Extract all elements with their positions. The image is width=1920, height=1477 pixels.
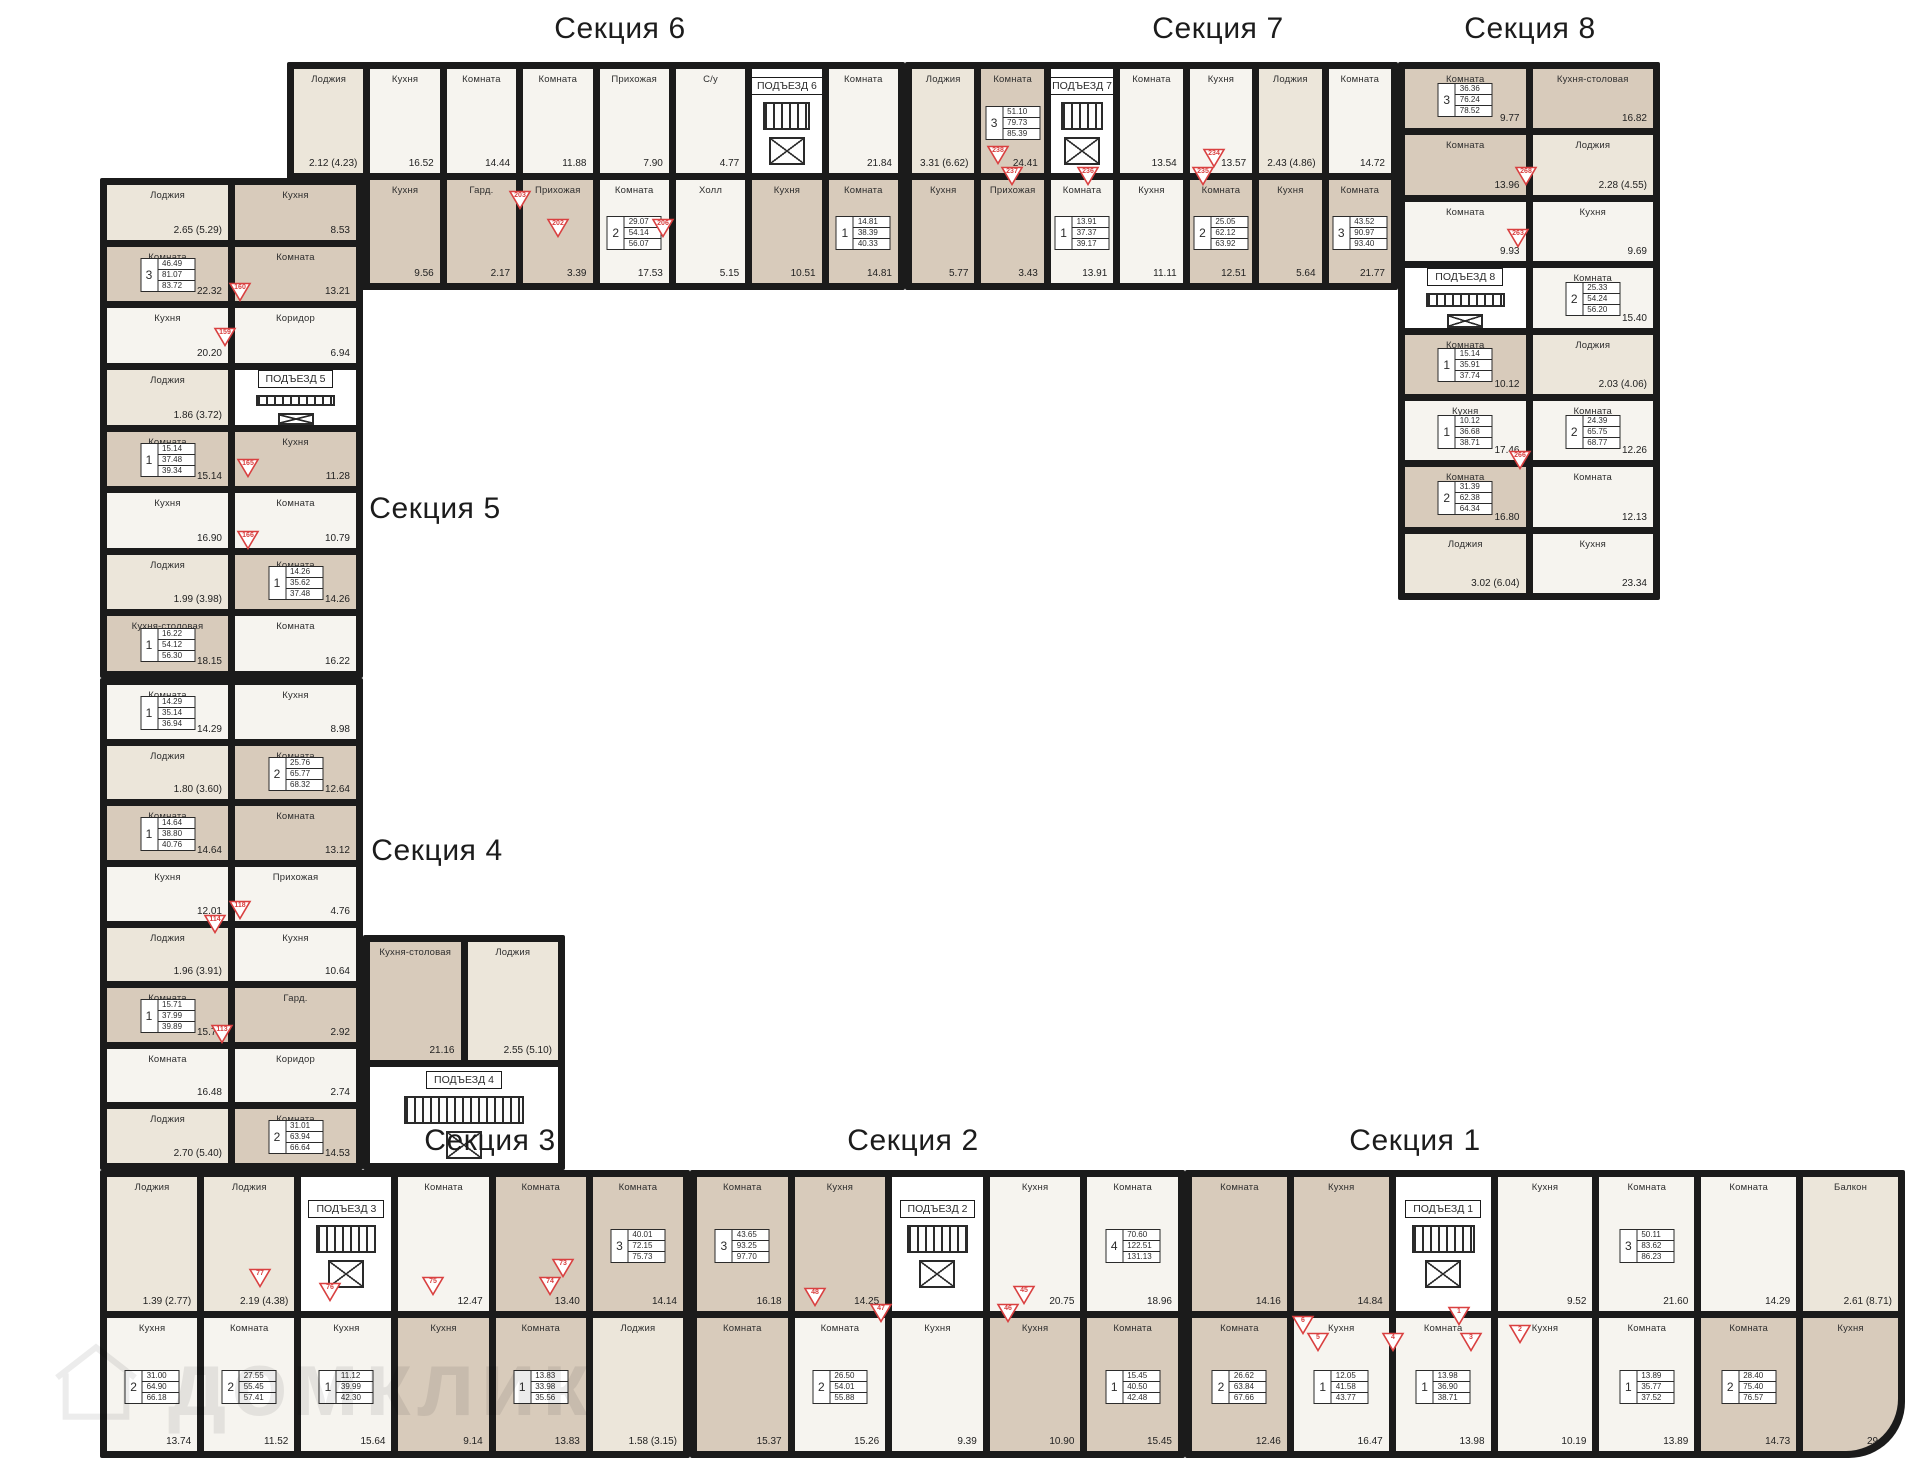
- room-area: 12.46: [1256, 1436, 1281, 1447]
- room-area: 18.15: [197, 656, 222, 667]
- apartment-area-value: 86.23: [1637, 1252, 1673, 1262]
- apartment-number-badge: 234: [1202, 148, 1226, 168]
- room-area: 1.80 (3.60): [174, 784, 222, 795]
- apartment-rooms-count: 2: [608, 217, 625, 249]
- room-area: 2.28 (4.55): [1599, 180, 1647, 191]
- badge-number: 74: [538, 1278, 562, 1285]
- room-name: Комната: [1120, 74, 1182, 85]
- elevator-icon: [1425, 1260, 1461, 1288]
- room-cell: Комната14.53231.0163.9466.64: [235, 1109, 356, 1163]
- entrance-label: ПОДЪЕЗД 7: [1051, 77, 1113, 95]
- room-cell: Гард.2.17: [447, 180, 516, 284]
- apartment-rooms-count: 1: [141, 444, 158, 476]
- apartment-rooms-count: 2: [1213, 1371, 1230, 1403]
- room-cell: Лоджия1.96 (3.91): [107, 928, 228, 982]
- room-area: 8.98: [331, 724, 350, 735]
- apartment-rooms-count: 3: [1333, 217, 1350, 249]
- apartment-stats: 114.2935.1436.94: [140, 696, 195, 730]
- entrance-label: ПОДЪЕЗД 6: [752, 77, 821, 95]
- stair-core: ПОДЪЕЗД 7: [1051, 69, 1113, 173]
- apartment-areas: 14.6438.8040.76: [158, 818, 194, 850]
- apartment-rooms-count: 2: [269, 758, 286, 790]
- room-name: Комната: [496, 1182, 586, 1193]
- room-name: Лоджия: [107, 751, 228, 762]
- apartment-stats: 111.1239.9942.30: [319, 1370, 374, 1404]
- room-cell: Кухня8.53: [235, 185, 356, 240]
- apartment-area-value: 42.30: [337, 1393, 373, 1403]
- room-cell: Комната15.14115.1437.4839.34: [107, 432, 228, 487]
- apartment-area-value: 93.40: [1350, 239, 1386, 249]
- entrance-label: ПОДЪЕЗД 3: [308, 1200, 384, 1218]
- apartment-rooms-count: 2: [126, 1371, 143, 1403]
- room-area: 10.90: [1049, 1436, 1074, 1447]
- room-cell: Кухня23.34: [1533, 534, 1654, 593]
- room-area: 29.50: [1867, 1436, 1892, 1447]
- room-cell: Комната14.14340.0172.1575.73: [593, 1177, 683, 1311]
- apartment-areas: 15.1435.9137.74: [1456, 349, 1492, 381]
- room-name: Кухня: [398, 1323, 488, 1334]
- room-name: Гард.: [235, 993, 356, 1004]
- room-cell: Кухня-столовая16.82: [1533, 69, 1654, 128]
- wing-section2-band: Комната16.18343.6593.2597.70Кухня14.25ПО…: [690, 1170, 1185, 1458]
- entrance-label: ПОДЪЕЗД 5: [258, 370, 334, 388]
- apartment-area-value: 35.14: [158, 707, 194, 719]
- room-cell: Комната15.37: [697, 1318, 788, 1452]
- apartment-area-value: 39.89: [158, 1022, 194, 1032]
- room-name: Лоджия: [912, 74, 974, 85]
- apartment-area-value: 55.88: [830, 1393, 866, 1403]
- room-name: Кухня: [107, 498, 228, 509]
- badge-number: 45: [1012, 1287, 1036, 1294]
- apartment-areas: 16.2254.1256.30: [158, 629, 194, 661]
- room-name: Прихожая: [235, 872, 356, 883]
- room-area: 13.54: [1152, 158, 1177, 169]
- apartment-areas: 36.3676.2478.52: [1456, 84, 1492, 116]
- room-name: Кухня: [1533, 539, 1654, 550]
- badge-number: 113: [210, 1026, 234, 1033]
- stairs-icon: [1412, 1225, 1475, 1253]
- room-name: Комната: [235, 498, 356, 509]
- room-cell: Лоджия2.55 (5.10): [468, 942, 559, 1060]
- room-area: 15.64: [360, 1436, 385, 1447]
- room-name: Комната: [697, 1323, 788, 1334]
- room-name: Лоджия: [107, 560, 228, 571]
- apartment-area-value: 83.72: [158, 281, 194, 291]
- apartment-rooms-count: 1: [1620, 1371, 1637, 1403]
- room-cell: Комната21.77343.5290.9793.40: [1329, 180, 1391, 284]
- room-name: Комната: [829, 74, 898, 85]
- room-cell: Кухня14.84: [1294, 1177, 1389, 1311]
- room-name: Кухня: [235, 690, 356, 701]
- apartment-area-value: 38.39: [854, 227, 890, 239]
- apartment-area-value: 66.64: [286, 1143, 322, 1153]
- room-area: 14.84: [1358, 1296, 1383, 1307]
- section-title-2: Секция 2: [847, 1124, 978, 1158]
- badge-number: 5: [1306, 1334, 1330, 1341]
- room-name: Комната: [204, 1323, 294, 1334]
- badge-number: 114: [203, 916, 227, 923]
- floor-plan: домклик Секция 1Секция 2Секция 3Секция 4…: [0, 0, 1920, 1477]
- room-name: Кухня: [1498, 1182, 1593, 1193]
- wing-section3-band: Лоджия1.39 (2.77)Лоджия2.19 (4.38)ПОДЪЕЗ…: [100, 1170, 690, 1458]
- room-name: Кухня: [1120, 185, 1182, 196]
- apartment-rooms-count: 1: [514, 1371, 531, 1403]
- apartment-area-value: 14.81: [854, 217, 890, 227]
- room-area: 9.52: [1567, 1296, 1586, 1307]
- apartment-area-value: 63.94: [286, 1131, 322, 1143]
- room-area: 14.14: [652, 1296, 677, 1307]
- apartment-area-value: 64.90: [143, 1381, 179, 1393]
- apartment-rooms-count: 3: [141, 259, 158, 291]
- badge-number: 234: [1202, 150, 1226, 157]
- room-name: Коридор: [235, 1054, 356, 1065]
- apartment-stats: 113.9137.3739.17: [1055, 216, 1110, 250]
- room-cell: Балкон2.61 (8.71): [1803, 1177, 1898, 1311]
- room-cell: Лоджия2.03 (4.06): [1533, 335, 1654, 394]
- apartment-area-value: 31.01: [286, 1121, 322, 1131]
- apartment-area-value: 43.77: [1332, 1393, 1368, 1403]
- room-name: Комната: [235, 252, 356, 263]
- room-area: 1.99 (3.98): [174, 594, 222, 605]
- apartment-area-value: 76.24: [1456, 94, 1492, 106]
- badge-number: 75: [421, 1278, 445, 1285]
- room-area: 15.37: [757, 1436, 782, 1447]
- room-cell: Комната13.83113.8333.9835.56: [496, 1318, 586, 1452]
- room-cell: Кухня20.20: [107, 308, 228, 363]
- room-name: Кухня: [990, 1323, 1081, 1334]
- apartment-rooms-count: 1: [141, 629, 158, 661]
- apartment-area-value: 11.12: [337, 1371, 373, 1381]
- room-cell: Кухня29.50: [1803, 1318, 1898, 1452]
- apartment-stats: 115.4540.5042.48: [1105, 1370, 1160, 1404]
- apartment-area-value: 39.34: [158, 466, 194, 476]
- apartment-area-value: 13.98: [1434, 1371, 1470, 1381]
- room-cell: Комната15.40225.3354.2456.20: [1533, 268, 1654, 327]
- room-area: 4.77: [720, 158, 739, 169]
- apartment-rooms-count: 1: [141, 1000, 158, 1032]
- room-area: 20.20: [197, 348, 222, 359]
- stair-core: ПОДЪЕЗД 8: [1405, 268, 1526, 327]
- room-area: 14.29: [1765, 1296, 1790, 1307]
- room-area: 21.60: [1663, 1296, 1688, 1307]
- apartment-area-value: 83.62: [1637, 1240, 1673, 1252]
- apartment-rooms-count: 1: [320, 1371, 337, 1403]
- apartment-area-value: 39.99: [337, 1381, 373, 1393]
- room-area: 15.40: [1622, 313, 1647, 324]
- apartment-rooms-count: 3: [611, 1230, 628, 1262]
- room-cell: Лоджия2.19 (4.38): [204, 1177, 294, 1311]
- badge-number: 159: [213, 329, 237, 336]
- apartment-rooms-count: 1: [141, 818, 158, 850]
- stair-core: ПОДЪЕЗД 6: [752, 69, 821, 173]
- apartment-stats: 226.6263.8467.66: [1212, 1370, 1267, 1404]
- apartment-areas: 25.3354.2456.20: [1583, 283, 1619, 315]
- apartment-areas: 14.8138.3940.33: [854, 217, 890, 249]
- room-name: Комната: [981, 74, 1043, 85]
- room-cell: Лоджия2.43 (4.86): [1259, 69, 1321, 173]
- room-cell: Холл5.15: [676, 180, 745, 284]
- room-cell: Кухня5.64: [1259, 180, 1321, 284]
- room-area: 16.48: [197, 1087, 222, 1098]
- apartment-rooms-count: 4: [1106, 1230, 1123, 1262]
- room-cell: Кухня11.11: [1120, 180, 1182, 284]
- room-area: 12.13: [1622, 512, 1647, 523]
- apartment-rooms-count: 2: [1439, 482, 1456, 514]
- room-cell: Комната14.16: [1192, 1177, 1287, 1311]
- room-area: 6.94: [331, 348, 350, 359]
- section-title-7: Секция 7: [1152, 12, 1283, 46]
- room-name: С/у: [676, 74, 745, 85]
- room-cell: Комната15.45115.4540.5042.48: [1087, 1318, 1178, 1452]
- apartment-rooms-count: 2: [1566, 283, 1583, 315]
- apartment-area-value: 25.33: [1583, 283, 1619, 293]
- room-area: 15.14: [197, 471, 222, 482]
- wing-section8-wing: Комната9.77336.3676.2478.52Кухня-столова…: [1398, 62, 1660, 600]
- apartment-area-value: 93.25: [733, 1240, 769, 1252]
- apartment-number-badge: 3: [1459, 1332, 1483, 1352]
- room-name: Кухня-столовая: [1533, 74, 1654, 85]
- apartment-areas: 51.1079.7385.39: [1003, 107, 1039, 139]
- room-name: Кухня: [912, 185, 974, 196]
- apartment-area-value: 54.01: [830, 1381, 866, 1393]
- apartment-stats: 116.2254.1256.30: [140, 628, 195, 662]
- room-name: Коридор: [235, 313, 356, 324]
- room-cell: Лоджия1.80 (3.60): [107, 746, 228, 800]
- stair-core: ПОДЪЕЗД 1: [1396, 1177, 1491, 1311]
- room-cell: Комната21.84: [829, 69, 898, 173]
- room-area: 7.90: [643, 158, 662, 169]
- section-title-5: Секция 5: [369, 492, 500, 526]
- room-area: 2.92: [331, 1027, 350, 1038]
- apartment-areas: 25.7665.7768.32: [286, 758, 322, 790]
- room-area: 5.77: [949, 268, 968, 279]
- apartment-rooms-count: 2: [1722, 1371, 1739, 1403]
- apartment-area-value: 26.50: [830, 1371, 866, 1381]
- apartment-area-value: 37.74: [1456, 371, 1492, 381]
- apartment-rooms-count: 3: [1620, 1230, 1637, 1262]
- room-area: 9.39: [957, 1436, 976, 1447]
- room-name: Комната: [1190, 185, 1252, 196]
- room-cell: Комната11.88: [523, 69, 592, 173]
- room-name: Комната: [795, 1323, 886, 1334]
- apartment-rooms-count: 2: [813, 1371, 830, 1403]
- room-area: 1.58 (3.15): [629, 1436, 677, 1447]
- room-name: Холл: [676, 185, 745, 196]
- badge-number: 46: [996, 1305, 1020, 1312]
- apartment-area-value: 36.68: [1456, 426, 1492, 438]
- room-cell: Комната21.60350.1183.6286.23: [1599, 1177, 1694, 1311]
- stairs-icon: [404, 1096, 525, 1124]
- apartment-area-value: 37.99: [158, 1010, 194, 1022]
- room-area: 16.82: [1622, 113, 1647, 124]
- room-name: Комната: [1192, 1182, 1287, 1193]
- room-name: Лоджия: [1533, 140, 1654, 151]
- room-area: 13.89: [1663, 1436, 1688, 1447]
- apartment-number-badge: 113: [210, 1024, 234, 1044]
- apartment-number-badge: 45: [1012, 1285, 1036, 1305]
- elevator-icon: [769, 137, 805, 165]
- room-area: 1.39 (2.77): [143, 1296, 191, 1307]
- apartment-areas: 10.1236.6838.71: [1456, 416, 1492, 448]
- room-area: 14.16: [1256, 1296, 1281, 1307]
- room-area: 9.77: [1500, 113, 1519, 124]
- apartment-area-value: 38.71: [1434, 1393, 1470, 1403]
- room-area: 13.91: [1082, 268, 1107, 279]
- room-cell: Лоджия1.99 (3.98): [107, 555, 228, 610]
- stairs-icon: [256, 395, 335, 406]
- apartment-area-value: 37.48: [286, 589, 322, 599]
- apartment-stats: 225.3354.2456.20: [1565, 282, 1620, 316]
- section-title-3: Секция 3: [424, 1124, 555, 1158]
- room-area: 12.26: [1622, 445, 1647, 456]
- badge-number: 165: [236, 460, 260, 467]
- apartment-area-value: 39.17: [1073, 239, 1109, 249]
- room-cell: Лоджия2.65 (5.29): [107, 185, 228, 240]
- apartment-areas: 14.2635.6237.48: [286, 567, 322, 599]
- room-area: 14.64: [197, 845, 222, 856]
- room-cell: Комната12.13: [1533, 467, 1654, 526]
- room-name: Лоджия: [107, 1114, 228, 1125]
- room-cell: Лоджия3.02 (6.04): [1405, 534, 1526, 593]
- apartment-area-value: 38.71: [1456, 438, 1492, 448]
- room-cell: Кухня10.64: [235, 928, 356, 982]
- elevator-icon: [278, 413, 314, 424]
- badge-number: 4: [1381, 1334, 1405, 1341]
- room-area: 1.86 (3.72): [174, 410, 222, 421]
- room-cell: Кухня9.14: [398, 1318, 488, 1452]
- room-name: Кухня: [370, 74, 439, 85]
- apartment-number-badge: 166: [236, 530, 260, 550]
- room-cell: Комната13.96: [1405, 135, 1526, 194]
- room-name: Кухня: [301, 1323, 391, 1334]
- apartment-area-value: 13.83: [531, 1371, 567, 1381]
- room-name: Кухня: [370, 185, 439, 196]
- room-name: Комната: [1701, 1182, 1796, 1193]
- apartment-number-badge: 114: [203, 914, 227, 934]
- room-name: Лоджия: [107, 933, 228, 944]
- room-cell: Комната10.12115.1435.9137.74: [1405, 335, 1526, 394]
- room-name: Комната: [829, 185, 898, 196]
- apartment-stats: 343.6593.2597.70: [715, 1229, 770, 1263]
- room-area: 16.47: [1358, 1436, 1383, 1447]
- room-area: 16.18: [757, 1296, 782, 1307]
- badge-number: 238: [986, 147, 1010, 154]
- apartment-rooms-count: 1: [1106, 1371, 1123, 1403]
- apartment-area-value: 25.76: [286, 758, 322, 768]
- apartment-area-value: 43.65: [733, 1230, 769, 1240]
- stairs-icon: [907, 1225, 967, 1253]
- apartment-rooms-count: 1: [1439, 416, 1456, 448]
- room-cell: Комната15.26226.5054.0155.88: [795, 1318, 886, 1452]
- room-area: 14.73: [1765, 1436, 1790, 1447]
- room-name: Кухня-столовая: [370, 947, 461, 958]
- apartment-number-badge: 236: [1076, 166, 1100, 186]
- room-area: 14.44: [485, 158, 510, 169]
- room-cell: Комната13.89113.8935.7737.52: [1599, 1318, 1694, 1452]
- apartment-area-value: 68.77: [1583, 438, 1619, 448]
- room-cell: Кухня9.69: [1533, 202, 1654, 261]
- room-area: 16.52: [409, 158, 434, 169]
- apartment-stats: 114.2635.6237.48: [268, 566, 323, 600]
- room-cell: Комната14.26114.2635.6237.48: [235, 555, 356, 610]
- room-cell: Комната9.77336.3676.2478.52: [1405, 69, 1526, 128]
- room-area: 14.26: [325, 594, 350, 605]
- apartment-area-value: 76.57: [1739, 1393, 1775, 1403]
- apartment-area-value: 40.76: [158, 840, 194, 850]
- apartment-stats: 114.8138.3940.33: [836, 216, 891, 250]
- apartment-stats: 110.1236.6838.71: [1438, 415, 1493, 449]
- apartment-rooms-count: 1: [269, 567, 286, 599]
- room-name: Кухня: [235, 437, 356, 448]
- apartment-areas: 50.1183.6286.23: [1637, 1230, 1673, 1262]
- room-name: Комната: [523, 74, 592, 85]
- apartment-areas: 15.7137.9939.89: [158, 1000, 194, 1032]
- apartment-area-value: 13.91: [1073, 217, 1109, 227]
- apartment-area-value: 43.52: [1350, 217, 1386, 227]
- room-cell: Лоджия2.28 (4.55): [1533, 135, 1654, 194]
- wing-section1-band: Комната14.16Кухня14.84ПОДЪЕЗД 1Кухня9.52…: [1185, 1170, 1905, 1458]
- room-cell: Комната18.96470.60122.51131.13: [1087, 1177, 1178, 1311]
- room-cell: Лоджия1.39 (2.77): [107, 1177, 197, 1311]
- apartment-rooms-count: 1: [1417, 1371, 1434, 1403]
- room-name: Лоджия: [294, 74, 363, 85]
- apartment-areas: 31.3962.3864.34: [1456, 482, 1492, 514]
- apartment-number-badge: 1: [1447, 1306, 1471, 1326]
- apartment-number-badge: 47: [869, 1303, 893, 1323]
- apartment-area-value: 13.89: [1637, 1371, 1673, 1381]
- apartment-areas: 27.5555.4557.41: [240, 1371, 276, 1403]
- room-cell: Кухня10.51: [752, 180, 821, 284]
- room-cell: Комната22.32346.4981.0783.72: [107, 247, 228, 302]
- section-title-4: Секция 4: [371, 834, 502, 868]
- room-name: Кухня: [1190, 74, 1252, 85]
- apartment-rooms-count: 2: [1194, 217, 1211, 249]
- apartment-stats: 225.0562.1263.92: [1193, 216, 1248, 250]
- room-area: 5.64: [1296, 268, 1315, 279]
- apartment-area-value: 24.39: [1583, 416, 1619, 426]
- room-cell: Комната13.12: [235, 806, 356, 860]
- apartment-area-value: 63.84: [1230, 1381, 1266, 1393]
- apartment-area-value: 14.26: [286, 567, 322, 577]
- apartment-area-value: 65.75: [1583, 426, 1619, 438]
- room-area: 11.52: [264, 1436, 288, 1447]
- room-name: Комната: [1701, 1323, 1796, 1334]
- room-area: 16.22: [325, 656, 350, 667]
- apartment-area-value: 36.94: [158, 719, 194, 729]
- apartment-areas: 28.4075.4076.57: [1739, 1371, 1775, 1403]
- apartment-stats: 340.0172.1575.73: [610, 1229, 665, 1263]
- room-area: 13.83: [555, 1436, 580, 1447]
- apartment-number-badge: 203: [508, 190, 532, 210]
- room-area: 11.11: [1153, 268, 1177, 279]
- entrance-label: ПОДЪЕЗД 2: [900, 1200, 976, 1218]
- apartment-number-badge: 165: [236, 458, 260, 478]
- apartment-area-value: 40.01: [628, 1230, 664, 1240]
- apartment-areas: 31.0163.9466.64: [286, 1121, 322, 1153]
- room-cell: Лоджия2.70 (5.40): [107, 1109, 228, 1163]
- room-name: Лоджия: [204, 1182, 294, 1193]
- wing-section5-wing: Лоджия2.65 (5.29)Кухня8.53Комната22.3234…: [100, 178, 363, 678]
- wing-section7-band: Лоджия3.31 (6.62)Комната24.41351.1079.73…: [905, 62, 1398, 290]
- room-name: Комната: [593, 1182, 683, 1193]
- badge-number: 3: [1459, 1334, 1483, 1341]
- apartment-areas: 13.9836.9038.71: [1434, 1371, 1470, 1403]
- room-name: Комната: [600, 185, 669, 196]
- room-area: 14.72: [1360, 158, 1385, 169]
- apartment-area-value: 27.55: [240, 1371, 276, 1381]
- room-name: Комната: [1405, 207, 1526, 218]
- room-name: Кухня: [1294, 1182, 1389, 1193]
